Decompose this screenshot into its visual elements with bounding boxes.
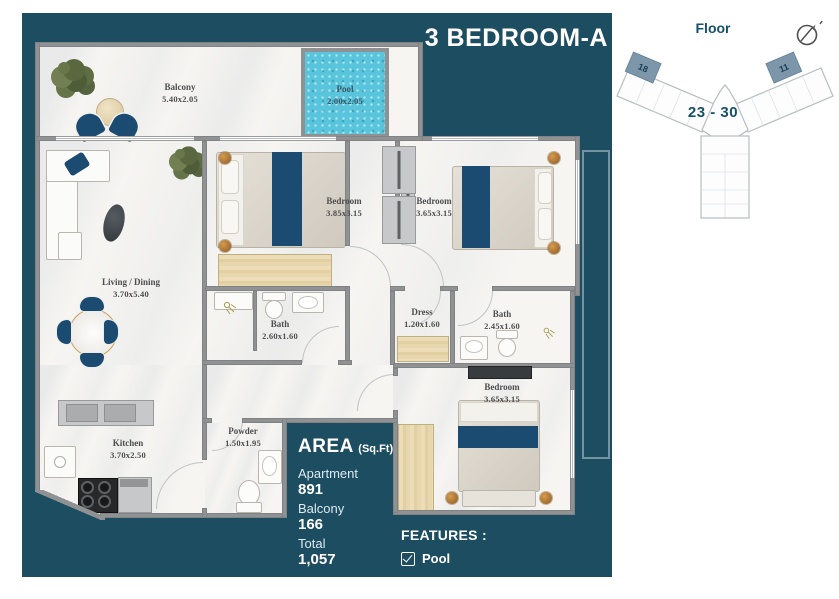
- features-heading: FEATURES :: [401, 527, 487, 543]
- exterior-ledge: [582, 150, 610, 459]
- floor-plan-page: 3 BEDROOM-A: [0, 0, 839, 599]
- wall: [393, 510, 575, 515]
- window: [432, 136, 538, 141]
- sink-basin: [298, 296, 318, 309]
- room-label-kitchen: Kitchen3.70x2.50: [73, 438, 183, 461]
- window: [575, 160, 580, 244]
- wall: [393, 410, 398, 513]
- window: [56, 136, 194, 141]
- area-balcony-label: Balcony: [298, 501, 344, 516]
- lamp: [219, 240, 231, 252]
- wall: [345, 141, 350, 246]
- shower-icon: [222, 300, 240, 318]
- bed-sheet: [460, 402, 538, 422]
- pillow: [221, 160, 239, 194]
- wall: [393, 368, 398, 376]
- kitchen-counter-edge: [120, 479, 148, 487]
- window: [570, 390, 575, 478]
- pillow: [538, 208, 552, 240]
- compass-icon: [792, 16, 828, 52]
- wall: [205, 286, 350, 291]
- toilet-bowl: [498, 338, 516, 357]
- area-apartment-label: Apartment: [298, 466, 358, 481]
- feature-pool: Pool: [401, 551, 450, 566]
- building-keyplan: 18 11: [615, 42, 835, 227]
- area-heading: AREA (Sq.Ft): [298, 436, 393, 458]
- wall: [35, 42, 40, 494]
- sink-basin: [465, 340, 483, 353]
- lamp: [548, 152, 560, 164]
- wall: [492, 286, 575, 291]
- dresser: [218, 254, 332, 288]
- room-label-living: Living / Dining3.70x5.40: [76, 277, 186, 300]
- lamp: [219, 152, 231, 164]
- wall: [242, 418, 287, 423]
- kitchen-appliance: [104, 404, 136, 422]
- room-label-balcony: Balcony5.40x2.05: [125, 82, 235, 105]
- wall: [440, 286, 458, 291]
- wall: [338, 360, 352, 365]
- bed-bench: [462, 490, 536, 507]
- room-label-bedroom3: Bedroom3.65x3.15: [447, 382, 557, 405]
- lamp: [540, 492, 552, 504]
- lamp: [446, 492, 458, 504]
- wall: [202, 360, 302, 365]
- kitchen-appliance: [66, 404, 98, 422]
- plan-corner-cut: [35, 490, 105, 520]
- pool-checkbox-label: Pool: [422, 551, 450, 566]
- page-title: 3 BEDROOM-A: [402, 24, 608, 53]
- room-label-bedroom2: Bedroom3.65x3.15: [379, 196, 489, 219]
- wall: [282, 418, 398, 423]
- area-balcony-value: 166: [298, 516, 323, 533]
- toilet: [236, 502, 262, 513]
- plant: [58, 62, 70, 74]
- wall: [418, 42, 423, 141]
- toilet-bowl: [265, 300, 283, 319]
- closet: [397, 336, 449, 362]
- area-total-value: 1,057: [298, 551, 336, 568]
- wall: [202, 141, 207, 460]
- wall: [345, 286, 350, 365]
- sink-basin: [54, 456, 66, 468]
- room-label-bath1: Bath2.60x1.60: [225, 319, 335, 342]
- keyplan-floor-label: Floor: [655, 20, 771, 36]
- room-label-bath2: Bath2.45x1.60: [447, 309, 557, 332]
- room-label-powder: Powder1.50x1.95: [188, 426, 298, 449]
- wall: [100, 513, 287, 518]
- wall: [202, 508, 207, 518]
- dining-chair: [57, 320, 71, 344]
- wall: [35, 42, 423, 47]
- keyplan-left-wing: [617, 68, 714, 132]
- bed-runner: [458, 426, 538, 448]
- sink-basin: [262, 456, 277, 476]
- wardrobe: [382, 146, 416, 194]
- lamp: [548, 242, 560, 254]
- pillow: [538, 172, 552, 204]
- pouf: [58, 232, 82, 260]
- tv-console: [468, 366, 532, 379]
- pool-checkbox: [401, 552, 415, 566]
- plant: [175, 149, 185, 159]
- pillow: [221, 200, 239, 234]
- area-apartment-value: 891: [298, 481, 323, 498]
- keyplan-floor-range: 23 - 30: [663, 104, 763, 121]
- area-total-label: Total: [298, 536, 325, 551]
- room-label-pool: Pool2.00x2.05: [290, 84, 400, 107]
- wardrobe: [398, 424, 434, 512]
- window: [220, 136, 336, 141]
- wall: [202, 418, 212, 423]
